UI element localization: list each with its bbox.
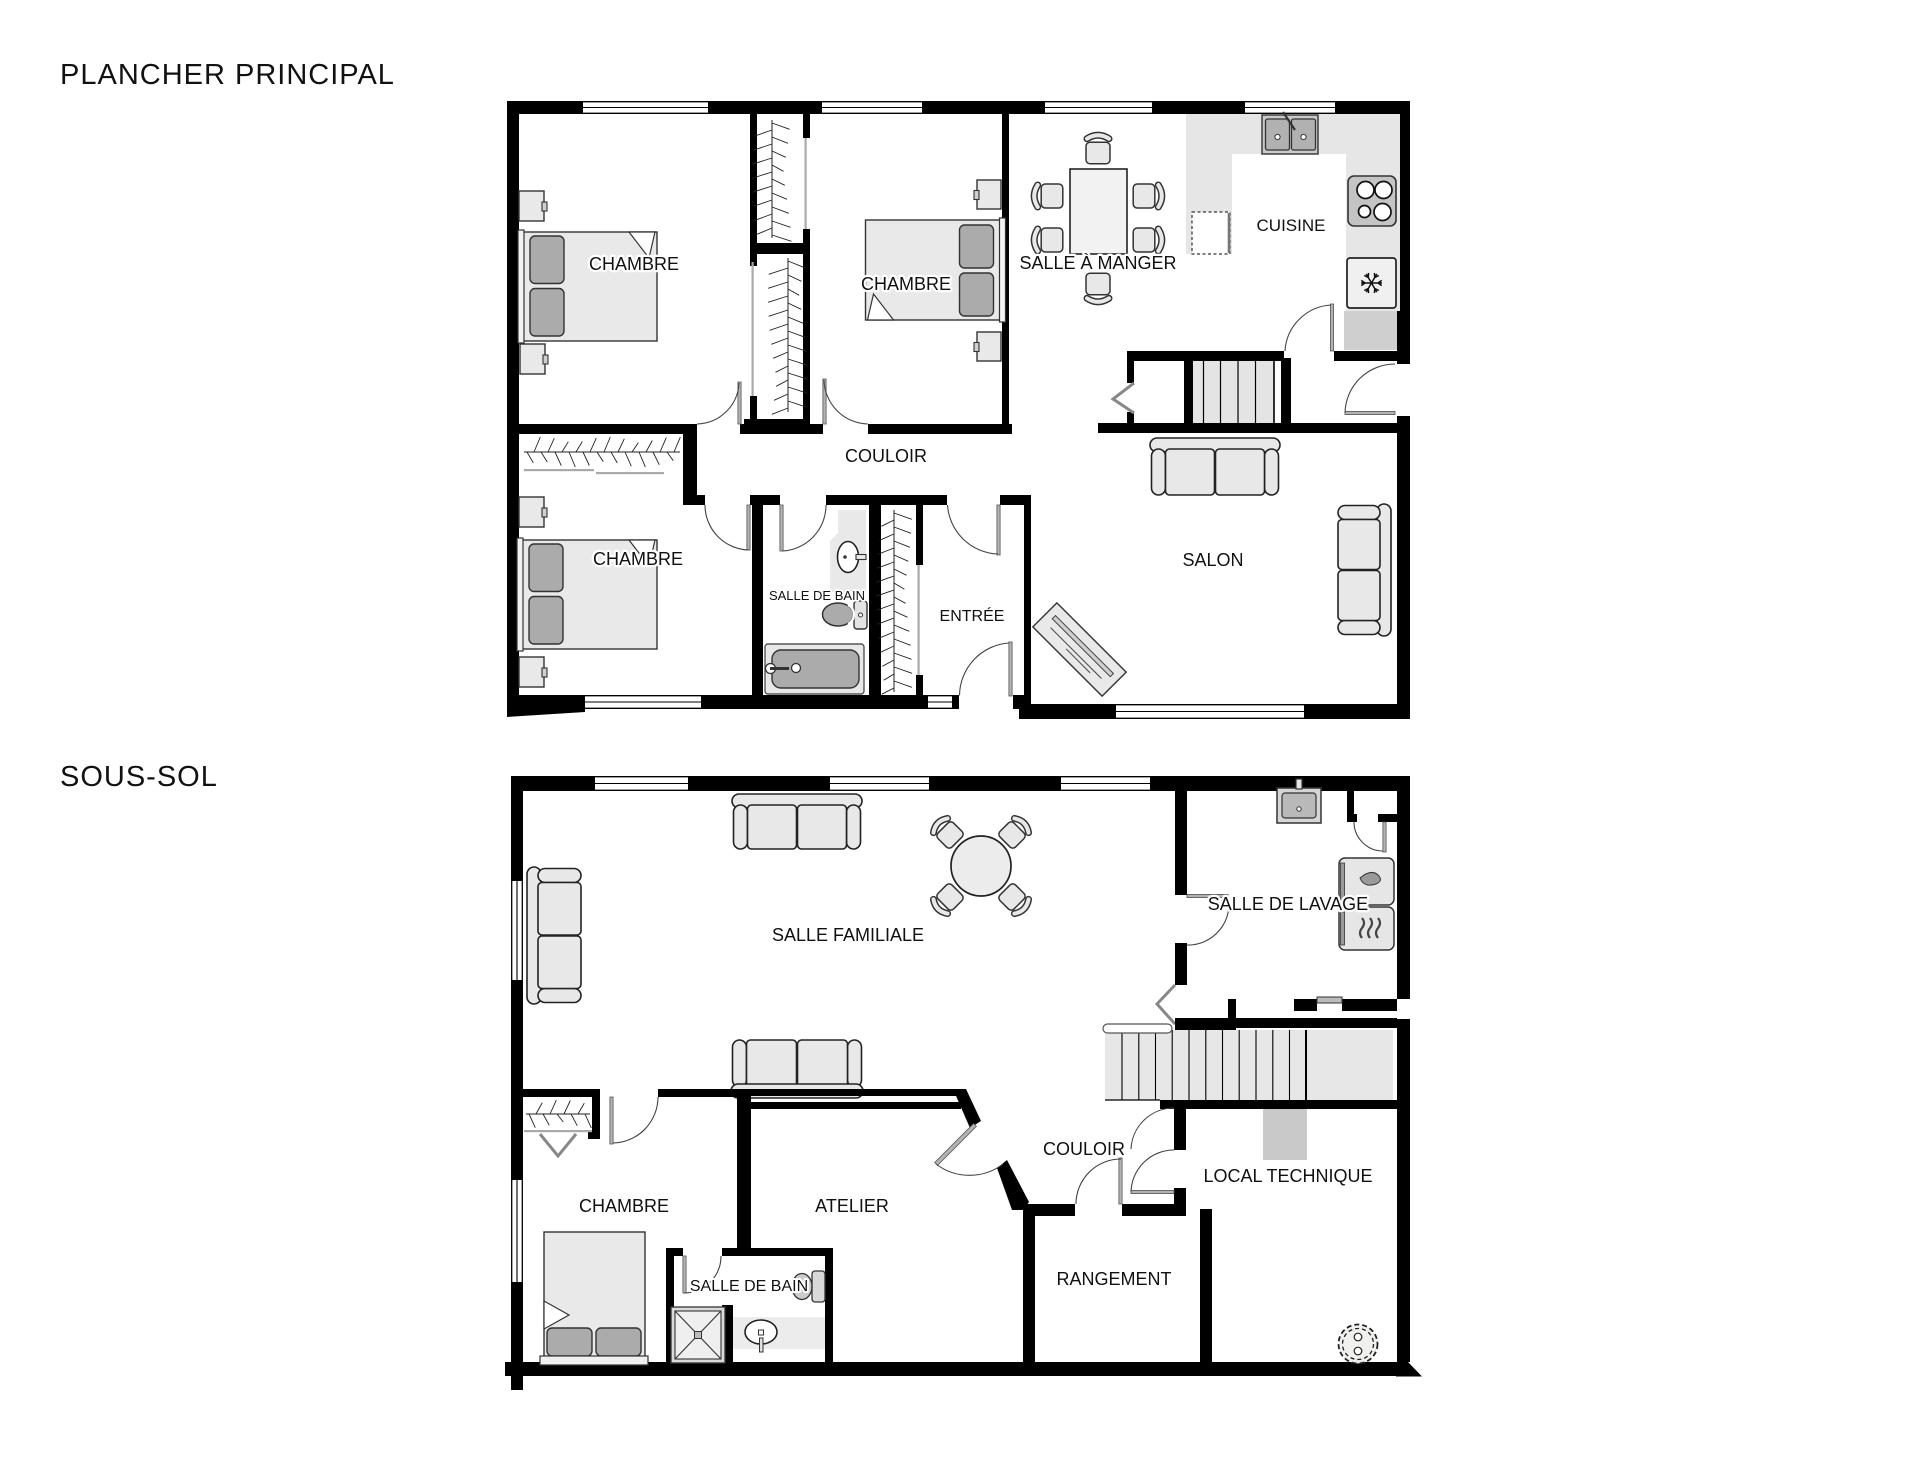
svg-text:PLANCHER PRINCIPAL: PLANCHER PRINCIPAL	[60, 59, 395, 91]
svg-text:RANGEMENT: RANGEMENT	[1056, 1269, 1171, 1289]
svg-text:ATELIER: ATELIER	[815, 1196, 889, 1216]
svg-text:COULOIR: COULOIR	[1043, 1139, 1125, 1159]
svg-text:CHAMBRE: CHAMBRE	[589, 254, 679, 274]
svg-text:LOCAL TECHNIQUE: LOCAL TECHNIQUE	[1203, 1166, 1372, 1186]
svg-text:ENTRÉE: ENTRÉE	[940, 606, 1005, 625]
svg-text:SALLE DE BAIN: SALLE DE BAIN	[690, 1278, 808, 1295]
svg-text:COULOIR: COULOIR	[845, 446, 927, 466]
svg-text:CHAMBRE: CHAMBRE	[579, 1196, 669, 1216]
svg-text:CHAMBRE: CHAMBRE	[861, 274, 951, 294]
svg-text:SALON: SALON	[1182, 550, 1243, 570]
svg-text:SALLE DE LAVAGE: SALLE DE LAVAGE	[1208, 894, 1368, 914]
svg-text:SOUS-SOL: SOUS-SOL	[60, 761, 218, 793]
svg-text:SALLE FAMILIALE: SALLE FAMILIALE	[772, 925, 924, 945]
svg-text:SALLE À MANGER: SALLE À MANGER	[1019, 253, 1176, 273]
svg-text:CHAMBRE: CHAMBRE	[593, 549, 683, 569]
svg-text:CUISINE: CUISINE	[1257, 216, 1326, 235]
svg-text:SALLE DE BAIN: SALLE DE BAIN	[769, 588, 865, 603]
